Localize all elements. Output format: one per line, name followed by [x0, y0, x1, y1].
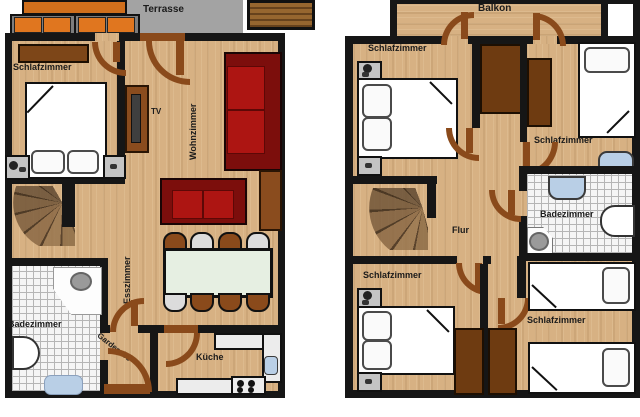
terrace-table — [22, 0, 127, 15]
bench-cushion — [14, 17, 42, 33]
tv-label: TV — [151, 107, 161, 116]
sofa-cushion — [203, 190, 234, 219]
entry-door-panel — [104, 384, 150, 394]
blanket-fold — [531, 284, 556, 308]
double-bed — [25, 82, 107, 179]
pillow — [67, 150, 99, 174]
burner — [248, 380, 255, 387]
nightstand — [357, 156, 382, 176]
nightstand-item — [19, 167, 26, 172]
nightstand-item — [365, 163, 372, 168]
bathroom-sink — [548, 176, 586, 200]
hallway-label: Flur — [452, 225, 469, 235]
dresser — [18, 44, 89, 63]
living-room-label: Wohnzimmer — [188, 88, 204, 160]
door-panel — [498, 298, 505, 324]
sofa-vertical — [224, 52, 282, 171]
balcony-label: Balkon — [478, 3, 511, 14]
stove — [231, 376, 266, 395]
shower-drain — [529, 232, 549, 251]
double-bed — [357, 78, 458, 159]
pillow — [602, 348, 630, 387]
sofa-cushion — [227, 66, 265, 110]
terrace-wood-table — [247, 0, 315, 30]
blanket-fold — [426, 309, 449, 332]
sofa-cushion — [172, 190, 203, 219]
nightstand-item — [365, 379, 372, 384]
toilet — [600, 205, 635, 237]
wardrobe — [480, 44, 524, 114]
terrace-label: Terrasse — [143, 4, 184, 15]
pillow — [362, 340, 392, 370]
bench-cushion — [107, 17, 135, 33]
door-panel — [131, 300, 138, 326]
pillow — [31, 150, 65, 174]
wall — [345, 256, 457, 264]
single-bed — [528, 262, 636, 311]
nightstand-item — [362, 300, 369, 305]
door-panel — [508, 190, 515, 215]
burner — [248, 387, 254, 393]
lamp — [363, 291, 372, 300]
lamp — [9, 161, 18, 170]
wall — [520, 44, 527, 142]
bench-cushion — [43, 17, 71, 33]
nightstand — [5, 155, 30, 180]
bath-mat — [44, 375, 83, 395]
wall — [601, 0, 608, 40]
kitchen-label: Küche — [196, 352, 224, 362]
double-bed — [357, 306, 455, 375]
wall — [472, 44, 480, 128]
sideboard — [259, 170, 282, 231]
chair — [246, 293, 270, 312]
kitchen-counter — [214, 333, 266, 350]
nightstand-item — [362, 72, 369, 77]
pillow — [362, 311, 392, 341]
bedroom-sw-label: Schlafzimmer — [363, 270, 422, 280]
door-panel — [466, 128, 473, 153]
dining-room-label: Esszimmer — [122, 242, 137, 304]
burner — [237, 387, 243, 393]
wardrobe — [488, 328, 517, 395]
shower-drain — [70, 272, 92, 291]
dining-table — [163, 248, 273, 298]
nightstand-item — [110, 164, 117, 169]
wardrobe — [527, 58, 552, 127]
wardrobe — [454, 328, 484, 395]
door-panel — [533, 13, 540, 40]
blanket-fold — [531, 366, 557, 391]
chair — [190, 293, 214, 312]
wall — [519, 174, 527, 191]
tv-unit — [125, 85, 149, 153]
bedroom-label: Schlafzimmer — [13, 62, 72, 72]
door-panel — [461, 12, 468, 39]
door-panel — [113, 42, 120, 62]
wall — [5, 33, 12, 398]
bathroom-upper-label: Badezimmer — [540, 209, 594, 219]
nightstand — [357, 372, 382, 392]
wall — [517, 256, 526, 298]
blanket-fold — [27, 85, 54, 113]
bench-cushion — [78, 17, 106, 33]
kitchen-sink — [264, 356, 278, 375]
blanket-fold — [606, 110, 629, 133]
tv-screen — [131, 94, 141, 143]
wall — [150, 333, 158, 391]
pillow — [584, 47, 630, 73]
single-bed — [528, 342, 636, 394]
nightstand — [103, 155, 126, 179]
floor-plan: Terrasse Schlafzimmer — [0, 0, 640, 417]
wall — [519, 166, 640, 174]
door-opening — [95, 33, 119, 41]
kitchen-counter — [176, 378, 235, 395]
pillow — [362, 84, 392, 118]
door-lintel — [164, 325, 198, 333]
wall — [345, 36, 353, 398]
blanket-fold — [429, 81, 452, 104]
pillow — [602, 267, 630, 304]
sofa-cushion — [227, 110, 265, 154]
chair — [163, 293, 187, 312]
stair-wall — [427, 176, 436, 218]
sofa-horizontal — [160, 178, 247, 225]
burner — [237, 380, 244, 387]
wall — [196, 325, 285, 333]
pillow — [362, 117, 392, 151]
single-bed — [578, 42, 636, 138]
wall — [519, 253, 640, 261]
bathroom-label: Badezimmer — [8, 319, 62, 329]
bedroom-nw-label: Schlafzimmer — [368, 43, 427, 53]
wall — [390, 0, 397, 40]
wall — [5, 258, 108, 266]
wall — [345, 176, 437, 184]
bedroom-se-label: Schlafzimmer — [527, 315, 586, 325]
chair — [218, 293, 242, 312]
door-panel — [176, 41, 184, 75]
stair-wall — [62, 184, 75, 227]
door-lintel — [140, 33, 185, 41]
